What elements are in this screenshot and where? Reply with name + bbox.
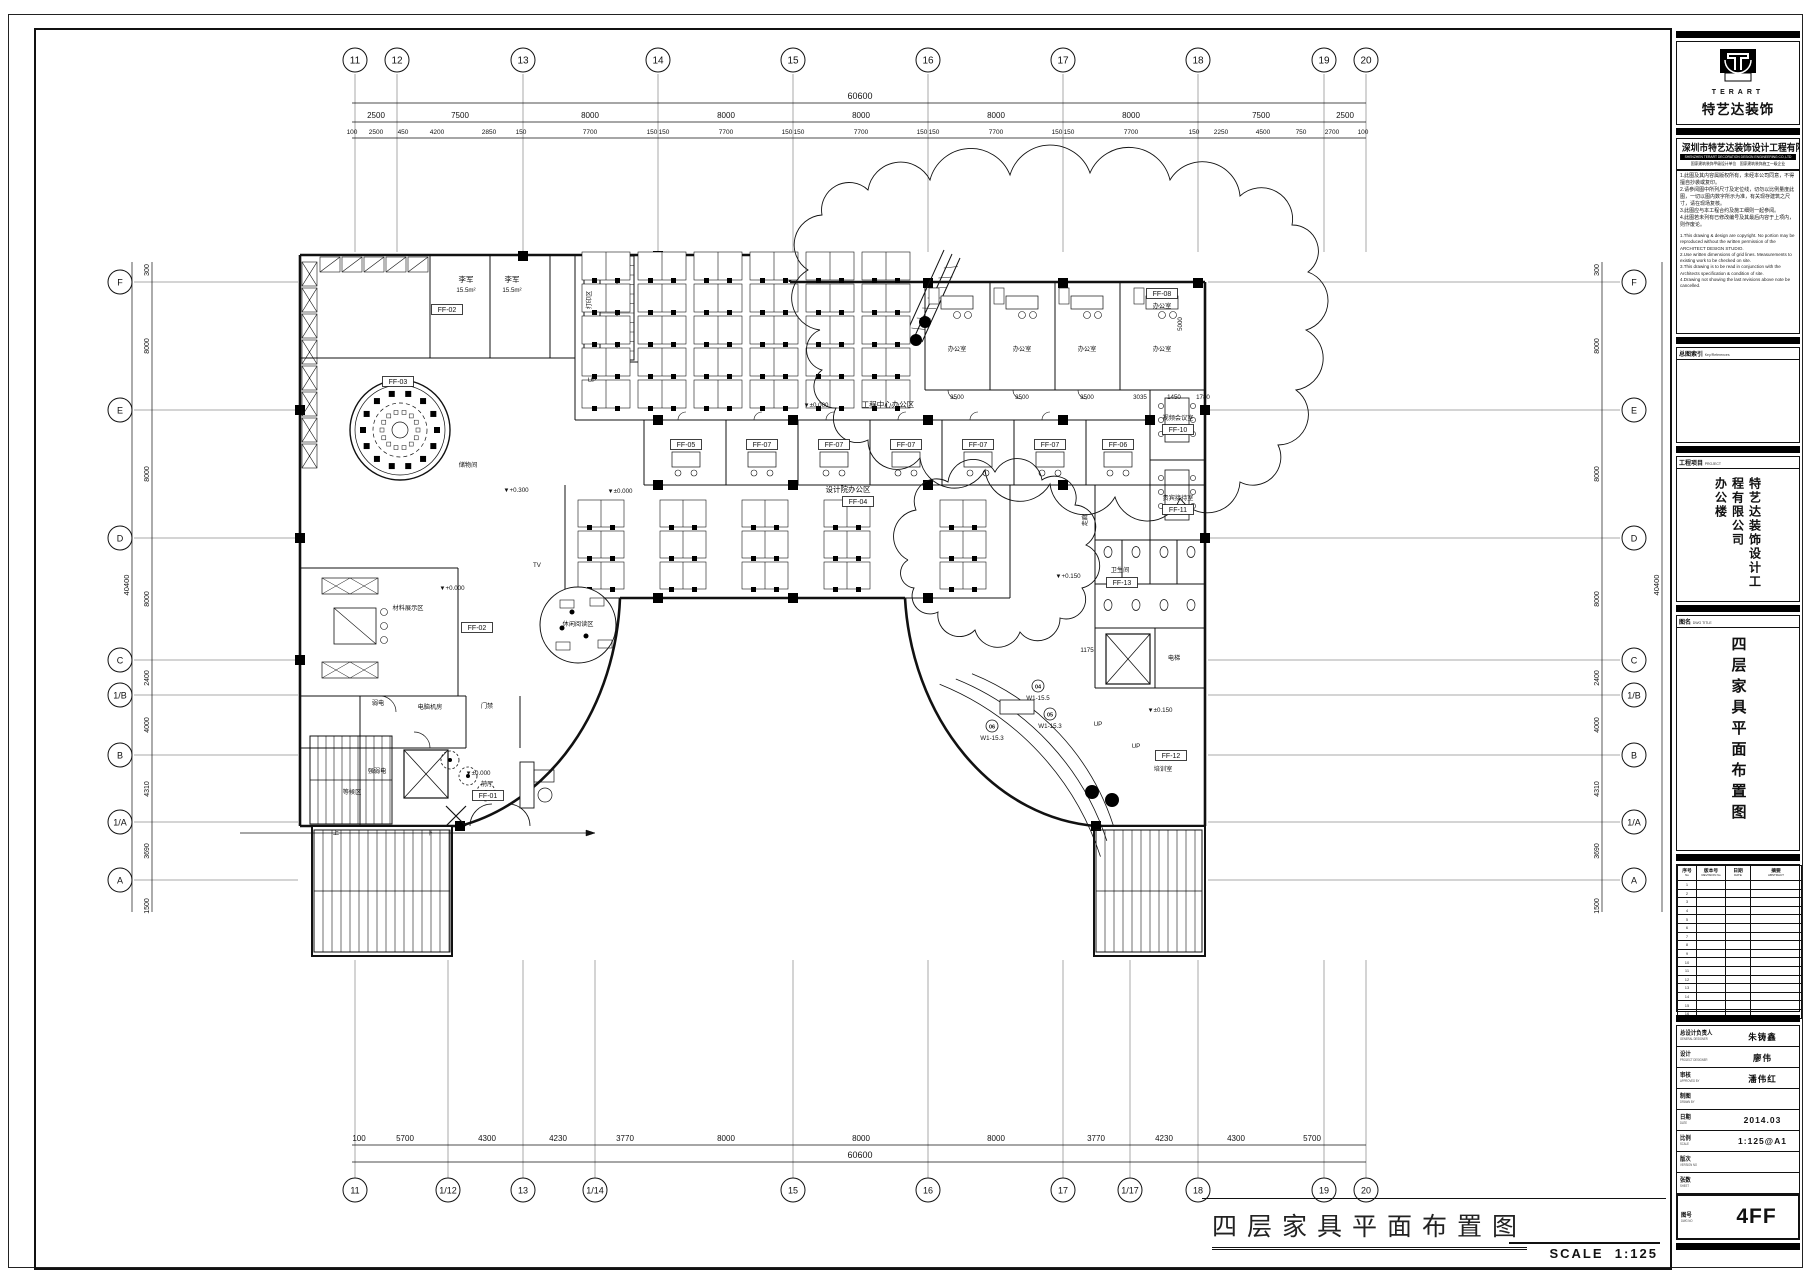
door-arc <box>826 412 834 420</box>
dim-text: 8000 <box>144 591 151 607</box>
cabinet <box>1059 288 1069 304</box>
chair <box>1123 470 1129 476</box>
room-code: FF-03 <box>389 379 408 386</box>
grid-bubble-label: 13 <box>517 56 529 67</box>
chair <box>671 374 676 379</box>
signature-value: 潘伟红 <box>1726 1068 1799 1088</box>
dim-text: 7700 <box>854 129 869 136</box>
room-code: FF-07 <box>1041 442 1060 449</box>
signature-value <box>1726 1152 1799 1172</box>
key-plan-box: 总图索引 Key/References <box>1676 347 1800 443</box>
dim-text: 7700 <box>583 129 598 136</box>
chair <box>671 278 676 283</box>
room-code: FF-10 <box>1169 427 1188 434</box>
grid-bubble-label: 1/B <box>1627 691 1641 701</box>
dim-text: 4000 <box>144 717 151 733</box>
room-code: FF-13 <box>1113 580 1132 587</box>
room-label: 李军 <box>459 274 474 284</box>
rev-row: 3 <box>1678 898 1802 907</box>
dim-text: 8000 <box>1594 591 1601 607</box>
door-arc <box>678 412 686 420</box>
seat <box>364 411 370 417</box>
chair <box>648 406 653 411</box>
chair <box>783 278 788 283</box>
room-label: 上 <box>333 829 339 837</box>
chair <box>381 609 388 616</box>
dim-text: 4500 <box>1256 129 1271 136</box>
dim-text: 8000 <box>852 1134 870 1143</box>
dim-text: 300 <box>144 264 151 276</box>
rev-col-header: 日期DATE <box>1726 866 1751 881</box>
door-arc <box>898 412 906 420</box>
grid-bubble-label: 13 <box>518 1186 528 1196</box>
chair <box>872 342 877 347</box>
dim-text: 8000 <box>852 111 870 120</box>
dim-text: 8000 <box>1594 338 1601 354</box>
terart-logo-icon <box>1719 48 1757 82</box>
room-label: UP <box>588 377 597 384</box>
dim-text: 7700 <box>719 129 734 136</box>
dim-text: 750 <box>1296 129 1307 136</box>
room-label: 储物间 <box>459 461 478 469</box>
room-label: 3500 <box>1015 394 1029 401</box>
title-block: TERART 特艺达装饰 深圳市特艺达装饰设计工程有限公司 SHENZHEN T… <box>1676 28 1800 1266</box>
chair <box>610 556 615 561</box>
seat <box>405 391 411 397</box>
wall-line <box>364 257 384 272</box>
rev-col-header: 序号No <box>1678 866 1697 881</box>
chair <box>587 556 592 561</box>
grid-bubble-label: 18 <box>1193 1186 1203 1196</box>
room-label: W1-15.5 <box>1026 695 1050 702</box>
wall-line <box>408 257 428 272</box>
chair <box>767 470 773 476</box>
dwg-no-value: 4FF <box>1715 1196 1798 1238</box>
toilet-fixture <box>1132 600 1140 611</box>
chair <box>965 312 972 319</box>
room-code: FF-07 <box>897 442 916 449</box>
grid-bubble-label: E <box>117 406 123 416</box>
scale-label: SCALE <box>1549 1246 1603 1261</box>
seat <box>374 456 380 462</box>
room-label: ▼+0.300 <box>503 487 529 494</box>
reception-desk <box>520 762 534 808</box>
dim-text: 4200 <box>430 129 445 136</box>
chair <box>727 310 732 315</box>
dwgno-label-en: DWG NO <box>1681 1219 1710 1223</box>
rev-col-header: 版本号REVISION No <box>1697 866 1726 881</box>
grid-bubble-label: A <box>1631 876 1637 886</box>
room-code: FF-11 <box>1169 507 1187 514</box>
rev-row: 1 <box>1678 881 1802 890</box>
room-label: 办公室 <box>1078 345 1097 353</box>
chair <box>570 610 575 615</box>
column <box>518 251 528 261</box>
chair <box>833 556 838 561</box>
chair <box>1190 403 1195 408</box>
toilet-fixture <box>1160 547 1168 558</box>
signature-block: 总设计负责人GENERAL DESIGNER 朱铸鑫 设计PROJECT DES… <box>1676 1025 1800 1194</box>
rev-row: 10 <box>1678 958 1802 967</box>
dim-text: 2500 <box>1336 111 1354 120</box>
seat <box>430 443 436 449</box>
grid-bubble-label: 14 <box>652 56 664 67</box>
seat <box>420 398 426 404</box>
dim-text: 150 <box>659 129 670 136</box>
notes-box: 1.此图及其内容属版权所有，未经本公司同意，不得擅自抄袭或复印。 2.请参阅图中… <box>1676 170 1800 334</box>
room-label: 1780 <box>1196 394 1210 401</box>
drawing-title: 四层家具平面布置图 <box>1212 1207 1527 1250</box>
room-label: 电梯 <box>1168 654 1180 662</box>
chair <box>692 525 697 530</box>
divider-bar <box>1676 1243 1800 1250</box>
divider-bar <box>1676 1015 1800 1022</box>
toilet-fixture <box>1132 547 1140 558</box>
chair <box>856 587 861 592</box>
room-label: ▼+0.150 <box>1055 573 1081 580</box>
room-code: FF-12 <box>1162 753 1181 760</box>
notes-english: 1.This drawing & design are copyright. N… <box>1680 233 1796 290</box>
rev-row: 4 <box>1678 906 1802 915</box>
grid-bubble-label: 18 <box>1192 56 1204 67</box>
door-arc <box>1042 412 1050 420</box>
rev-row: 14 <box>1678 992 1802 1001</box>
chair <box>856 556 861 561</box>
grid-bubble-label: 20 <box>1361 1186 1371 1196</box>
company-qualifications: 国家建筑装饰甲级设计单位 国家建筑装饰施工一级企业 <box>1683 161 1793 167</box>
column <box>923 480 933 490</box>
dim-text: 150 <box>1052 129 1063 136</box>
chair <box>691 470 697 476</box>
brand-name-cn: 特艺达装饰 <box>1677 98 1799 118</box>
rev-row: 9 <box>1678 949 1802 958</box>
chair <box>1107 470 1113 476</box>
dim-text: 4230 <box>549 1134 567 1143</box>
divider-bar <box>1676 31 1800 38</box>
chair <box>1158 489 1163 494</box>
chair <box>783 374 788 379</box>
table <box>538 788 552 802</box>
grid-bubble-label: F <box>1631 278 1637 288</box>
dim-text: 3690 <box>144 843 151 859</box>
chair <box>1159 312 1166 319</box>
signature-value: 朱铸鑫 <box>1726 1026 1799 1046</box>
chair <box>704 278 709 283</box>
chair <box>872 278 877 283</box>
column <box>1200 533 1210 543</box>
door-arc <box>970 412 978 420</box>
chair <box>1095 312 1102 319</box>
grid-bubble-label: 12 <box>391 56 403 67</box>
grid-bubble-label: 1/A <box>113 818 127 828</box>
grid-bubble-label: 15 <box>787 56 799 67</box>
chair <box>704 374 709 379</box>
dim-total: 60600 <box>847 1150 872 1160</box>
grid-bubble-label: 17 <box>1058 1186 1068 1196</box>
chair <box>839 374 844 379</box>
toilet-fixture <box>1187 547 1195 558</box>
desk <box>820 452 848 467</box>
chair <box>669 525 674 530</box>
chair <box>839 406 844 411</box>
divider-bar <box>1676 605 1800 612</box>
drawing-sheet: { "sheet": { "drawing_title": "四层家具平面布置图… <box>0 0 1810 1280</box>
grid-bubble-label: 19 <box>1318 56 1330 67</box>
chair <box>615 278 620 283</box>
chair <box>592 406 597 411</box>
signature-value: 廖伟 <box>1726 1047 1799 1067</box>
chair <box>751 556 756 561</box>
chair <box>774 556 779 561</box>
dim-text: 150 <box>782 129 793 136</box>
dim-text: 4310 <box>1594 781 1601 797</box>
dim-text: 150 <box>516 129 527 136</box>
dim-text: 4000 <box>1594 717 1601 733</box>
dim-text: 2250 <box>1214 129 1229 136</box>
room-code: FF-08 <box>1153 291 1172 298</box>
chair <box>1190 489 1195 494</box>
room-code: FF-04 <box>849 499 868 506</box>
desk <box>1006 296 1038 309</box>
divider-bar <box>1676 128 1800 135</box>
chair <box>751 470 757 476</box>
chair <box>704 406 709 411</box>
chair <box>648 310 653 315</box>
chair <box>954 312 961 319</box>
room-label: 视频会议室 <box>1163 414 1194 422</box>
grid-bubble-label: B <box>1631 751 1637 761</box>
ref-tag-label: 06 <box>989 725 995 731</box>
chair <box>615 342 620 347</box>
grid-bubble-label: 16 <box>922 56 934 67</box>
room-label: 电脑机房 <box>418 703 443 711</box>
dim-total: 40400 <box>1652 575 1661 596</box>
cabinet <box>929 288 939 304</box>
chair <box>648 374 653 379</box>
dwg-title-box: 图名 DWG TITLE 四层家具平面布置图 <box>1676 615 1800 851</box>
room-label: 材料展示区 <box>393 604 424 612</box>
dim-text: 5700 <box>1303 1134 1321 1143</box>
signature-row: 比例SCALE 1:125@A1 <box>1676 1131 1800 1152</box>
column <box>653 480 663 490</box>
chair <box>751 587 756 592</box>
dim-text: 2400 <box>144 670 151 686</box>
chair <box>727 342 732 347</box>
project-label-cn: 工程项目 <box>1679 461 1703 467</box>
grid-bubble-label: 16 <box>923 1186 933 1196</box>
room-label: 1450 <box>1167 394 1181 401</box>
column <box>1193 278 1203 288</box>
room-label: 打印区 <box>585 291 593 310</box>
rev-row: 6 <box>1678 923 1802 932</box>
grid-bubble-label: 17 <box>1057 56 1069 67</box>
grid-bubble-label: 11 <box>350 56 361 67</box>
chair <box>727 406 732 411</box>
wall-line <box>922 308 936 309</box>
chair <box>839 278 844 283</box>
dim-text: 150 <box>1189 129 1200 136</box>
room-code: FF-02 <box>438 307 457 314</box>
seat <box>364 443 370 449</box>
dim-text: 8000 <box>1594 466 1601 482</box>
signature-row: 张数SHEET <box>1676 1173 1800 1194</box>
grid-bubble-label: B <box>117 751 123 761</box>
bottom-title-bar: 四层家具平面布置图 SCALE 1:125 <box>1202 1198 1666 1265</box>
chair <box>669 587 674 592</box>
ref-tag-label: 04 <box>1035 685 1042 691</box>
room-label: 5000 <box>1177 317 1184 331</box>
dim-text: 1500 <box>144 898 151 914</box>
training-table <box>1000 700 1034 714</box>
dim-text: 2850 <box>482 129 497 136</box>
divider-bar <box>1676 446 1800 453</box>
dim-total: 40400 <box>122 575 131 596</box>
dim-text: 8000 <box>144 466 151 482</box>
rev-row: 15 <box>1678 1001 1802 1010</box>
seat <box>374 398 380 404</box>
notes-chinese: 1.此图及其内容属版权所有，未经本公司同意，不得擅自抄袭或复印。 2.请参阅图中… <box>1680 173 1796 229</box>
grid-bubble-label: 1/17 <box>1121 1186 1139 1196</box>
seat <box>405 463 411 469</box>
rev-row: 12 <box>1678 975 1802 984</box>
toilet-fixture <box>1104 547 1112 558</box>
signature-value <box>1726 1089 1799 1109</box>
grid-bubble-label: C <box>1631 656 1638 666</box>
chair <box>671 406 676 411</box>
seat <box>389 391 395 397</box>
chair <box>949 556 954 561</box>
chair <box>895 278 900 283</box>
grid-bubble-label: 11 <box>350 1186 359 1196</box>
brand-name-en: TERART <box>1677 89 1799 96</box>
chair <box>967 470 973 476</box>
chair <box>592 342 597 347</box>
dwg-no-box: 图号 DWG NO 4FF <box>1676 1194 1800 1240</box>
chair <box>1190 475 1195 480</box>
chair <box>972 525 977 530</box>
dim-text: 100 <box>352 1134 366 1143</box>
room-rect <box>322 578 378 594</box>
room-label: 弱电 <box>372 699 384 707</box>
column <box>1058 415 1068 425</box>
desk <box>1036 452 1064 467</box>
room-code: FF-02 <box>468 625 487 632</box>
revision-table: 序号No版本号REVISION No日期DATE摘要ABSTRACT123456… <box>1676 864 1800 1012</box>
chair <box>783 342 788 347</box>
dim-text: 150 <box>917 129 928 136</box>
room-code: FF-01 <box>479 793 498 800</box>
grid-bubble-label: E <box>1631 406 1637 416</box>
signature-value: 2014.03 <box>1726 1110 1799 1130</box>
chair <box>615 374 620 379</box>
chair <box>1055 470 1061 476</box>
room-label: 卫生间 <box>1111 566 1130 574</box>
project-label-en: PROJECT <box>1705 462 1721 466</box>
room-label: 门禁 <box>481 702 493 710</box>
rev-row: 2 <box>1678 889 1802 898</box>
chair <box>774 525 779 530</box>
wall-line <box>342 257 362 272</box>
chair <box>692 587 697 592</box>
dim-text: 8000 <box>717 1134 735 1143</box>
wall-line <box>938 277 952 278</box>
seat <box>430 411 436 417</box>
room-code: FF-07 <box>753 442 772 449</box>
chair <box>774 587 779 592</box>
room-code: FF-06 <box>1109 442 1128 449</box>
dim-text: 150 <box>647 129 658 136</box>
chair <box>972 556 977 561</box>
chair <box>872 374 877 379</box>
company-name-cn: 深圳市特艺达装饰设计工程有限公司 <box>1682 140 1794 154</box>
grid-bubble-label: 1/A <box>1627 818 1641 828</box>
cabinet <box>1134 288 1144 304</box>
chair <box>895 342 900 347</box>
column <box>653 593 663 603</box>
room-code: FF-07 <box>825 442 844 449</box>
room-label: 3035 <box>1133 394 1147 401</box>
grid-bubble-label: 1/14 <box>586 1186 604 1196</box>
room-label: 李军 <box>505 274 520 284</box>
dim-text: 8000 <box>717 111 735 120</box>
dim-text: 8000 <box>144 338 151 354</box>
chair <box>381 623 388 630</box>
chair <box>704 310 709 315</box>
column <box>653 415 663 425</box>
dim-text: 7700 <box>1124 129 1139 136</box>
chair <box>751 525 756 530</box>
room-label: W1-15.3 <box>980 735 1004 742</box>
project-name: 特艺达装饰设计工程有限公司办公楼 <box>1713 477 1764 602</box>
toilet-fixture <box>1104 600 1112 611</box>
chair <box>381 637 388 644</box>
chair <box>895 470 901 476</box>
chair <box>648 342 653 347</box>
chair <box>760 342 765 347</box>
room-label: 1175 <box>1080 647 1094 654</box>
dim-text: 5700 <box>396 1134 414 1143</box>
chair <box>949 587 954 592</box>
room-label: 培训室 <box>1154 765 1173 773</box>
chair <box>816 310 821 315</box>
wall-line <box>320 257 340 272</box>
grid-bubble-label: D <box>117 534 124 544</box>
dim-text: 150 <box>929 129 940 136</box>
grid-bubble-label: 1/12 <box>439 1186 457 1196</box>
dim-text: 1500 <box>1594 898 1601 914</box>
divider-bar <box>1676 854 1800 861</box>
room-label: ▼+0.000 <box>439 585 465 592</box>
chair <box>823 470 829 476</box>
chair <box>669 556 674 561</box>
signature-row: 版次VERSION NO <box>1676 1152 1800 1173</box>
dim-text: 8000 <box>987 111 1005 120</box>
dim-text: 300 <box>1594 264 1601 276</box>
room-label: UP <box>1132 743 1141 750</box>
dwg-title-text: 四层家具平面布置图 <box>1728 636 1749 846</box>
column <box>455 821 465 831</box>
chair <box>671 310 676 315</box>
chair <box>648 278 653 283</box>
desk <box>1071 296 1103 309</box>
logo-box: TERART 特艺达装饰 <box>1676 41 1800 125</box>
scale-value: 1:125 <box>1615 1246 1658 1261</box>
room-label: 15.5m² <box>502 287 521 294</box>
room-code: FF-05 <box>677 442 696 449</box>
dwgno-label-cn: 图号 <box>1681 1210 1712 1219</box>
room-label: UP <box>1094 721 1103 728</box>
room-label: ▼±0.000 <box>803 402 829 409</box>
